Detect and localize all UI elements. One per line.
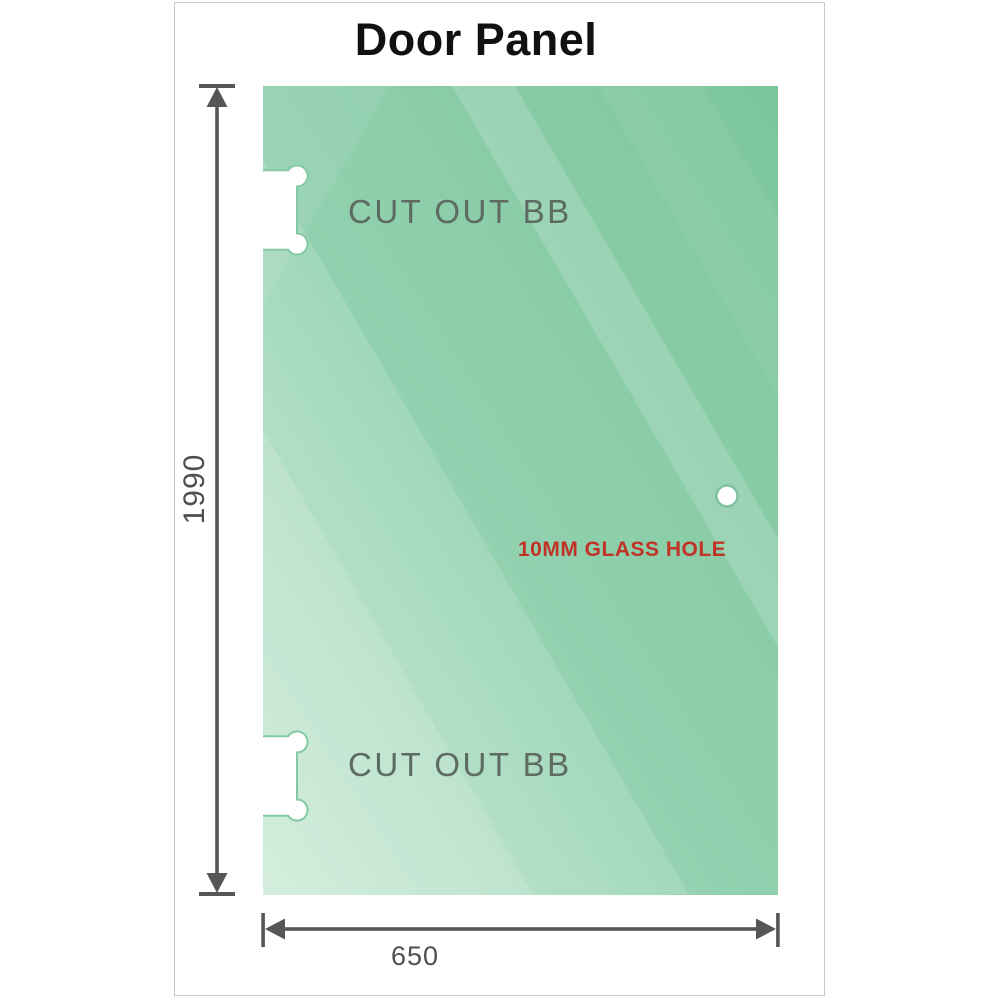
diagram-drawing [0,0,1000,1000]
height-dimension-arrow-down-icon [207,873,228,893]
glass-hole-label: 10MM GLASS HOLE [518,538,726,562]
glass-hole [717,486,738,507]
width-dimension [261,913,779,947]
height-dimension-arrow-up-icon [207,87,228,107]
page-title: Door Panel [150,14,802,66]
width-dimension-line [280,927,761,931]
height-dimension-value: 1990 [178,454,212,525]
cutout-label-bottom: CUT OUT BB [348,746,572,784]
width-dimension-right-tick [776,913,780,947]
cutout-label-top: CUT OUT BB [348,193,572,231]
width-dimension-value: 650 [365,941,465,972]
width-dimension-left-tick [261,913,265,947]
door-panel-diagram: Door Panel CUT OUT BB CUT OUT BB 10MM GL… [0,0,1000,1000]
width-dimension-arrow-left-icon [265,919,285,940]
height-dimension-line [215,100,219,880]
width-dimension-arrow-right-icon [756,919,776,940]
